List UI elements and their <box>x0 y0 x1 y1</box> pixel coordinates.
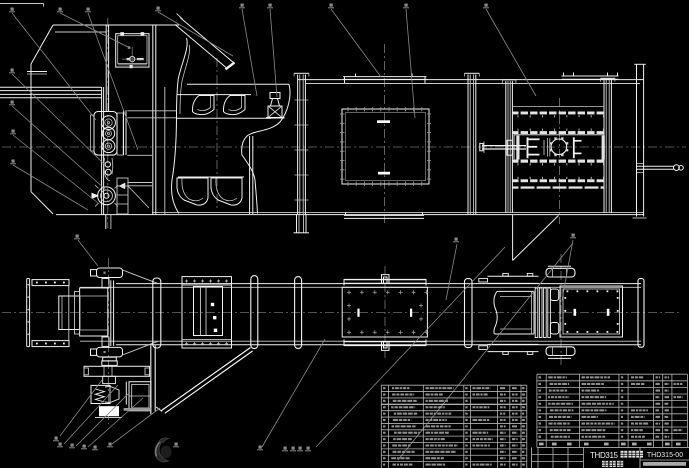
svg-text:THD315-00: THD315-00 <box>647 452 683 459</box>
svg-text:THD315: THD315 <box>590 451 619 460</box>
